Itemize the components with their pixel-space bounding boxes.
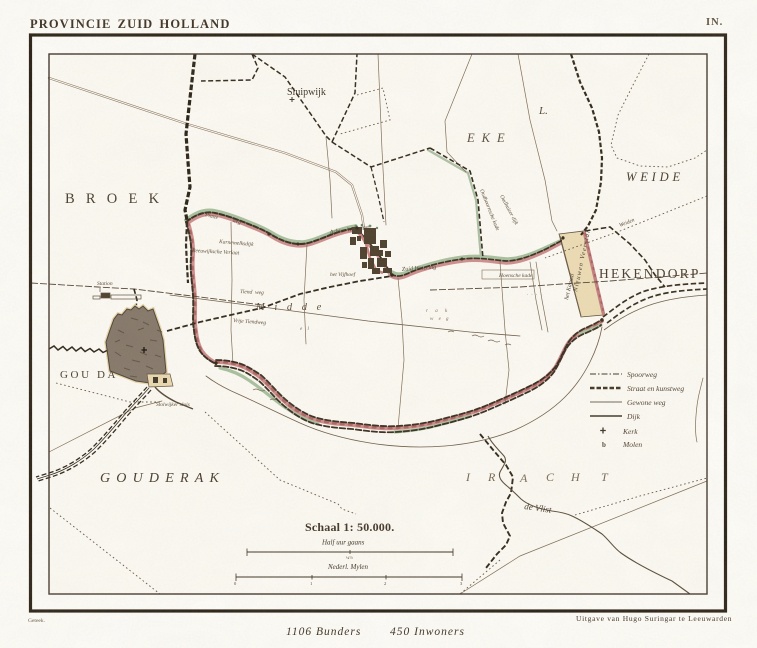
svg-text:Half uur gaans: Half uur gaans <box>321 539 365 547</box>
svg-text:het Vijfhoef: het Vijfhoef <box>330 271 357 278</box>
svg-text:A: A <box>519 471 528 485</box>
svg-text:1106 Bunders: 1106 Bunders <box>286 626 361 638</box>
svg-text:GOUDERAK: GOUDERAK <box>100 471 225 486</box>
svg-text:H: H <box>570 470 581 484</box>
svg-text:w e g: w e g <box>430 317 451 322</box>
svg-text:Straat en kunstweg: Straat en kunstweg <box>627 384 684 393</box>
svg-text:R: R <box>487 470 496 484</box>
svg-text:HEKENDORP: HEKENDORP <box>599 266 701 281</box>
svg-text:L.: L. <box>538 105 548 117</box>
svg-text:M i d d e: M i d d e <box>255 302 325 313</box>
svg-text:Tiend weg: Tiend weg <box>240 289 264 296</box>
svg-text:Molen: Molen <box>622 440 642 449</box>
svg-text:Gewone weg: Gewone weg <box>627 398 666 407</box>
svg-text:r a k: r a k <box>426 309 450 314</box>
svg-text:e l: e l <box>300 327 311 332</box>
svg-text:Hoensche kade: Hoensche kade <box>498 273 533 279</box>
svg-text:Schaal 1: 50.000.: Schaal 1: 50.000. <box>305 520 394 534</box>
svg-text:Spoorweg: Spoorweg <box>627 370 657 379</box>
svg-text:¼½: ¼½ <box>346 555 353 560</box>
svg-text:WEIDE: WEIDE <box>626 170 684 184</box>
svg-text:EKE: EKE <box>466 131 512 145</box>
svg-text:b: b <box>602 441 606 449</box>
svg-text:Sluipwijk: Sluipwijk <box>287 87 326 98</box>
svg-text:450 Inwoners: 450 Inwoners <box>390 626 465 638</box>
svg-text:. . . .: . . . . <box>527 292 543 297</box>
svg-text:Uitgave van Hugo Suringar te L: Uitgave van Hugo Suringar te Leeuwarden <box>576 614 732 623</box>
svg-text:IN.: IN. <box>706 17 723 28</box>
svg-text:C: C <box>546 470 555 484</box>
svg-text:B R O E K: B R O E K <box>65 191 163 207</box>
svg-text:PROVINCIE ZUID HOLLAND: PROVINCIE ZUID HOLLAND <box>30 17 230 31</box>
svg-text:Geteek.: Geteek. <box>28 618 46 624</box>
svg-text:2: 2 <box>384 581 386 586</box>
svg-text:Nederl. Mylen: Nederl. Mylen <box>327 563 369 571</box>
svg-text:Kerk: Kerk <box>622 427 638 436</box>
svg-text:Stolwijker sluis: Stolwijker sluis <box>156 402 190 408</box>
svg-text:GOU DA: GOU DA <box>60 369 118 381</box>
svg-text:Dijk: Dijk <box>626 412 641 421</box>
svg-text:1: 1 <box>310 581 312 586</box>
svg-text:Station: Station <box>97 281 113 287</box>
